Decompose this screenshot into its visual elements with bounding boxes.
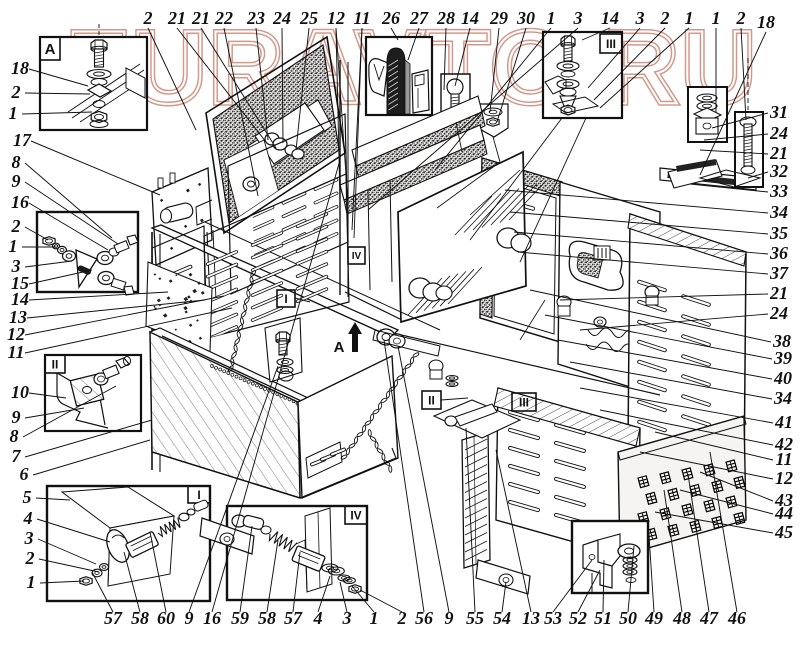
- svg-text:4: 4: [23, 508, 33, 528]
- svg-text:31: 31: [769, 102, 788, 122]
- svg-text:I: I: [284, 292, 287, 306]
- svg-text:3: 3: [635, 8, 645, 28]
- svg-text:2: 2: [11, 82, 21, 102]
- svg-text:33: 33: [769, 181, 788, 201]
- svg-text:2: 2: [11, 216, 21, 236]
- svg-text:21: 21: [167, 8, 186, 28]
- svg-text:IV: IV: [352, 251, 362, 262]
- svg-text:36: 36: [769, 243, 788, 263]
- svg-text:2: 2: [397, 608, 407, 628]
- svg-text:16: 16: [11, 192, 29, 212]
- svg-text:1: 1: [27, 572, 36, 592]
- svg-text:3: 3: [24, 528, 34, 548]
- svg-text:57: 57: [104, 608, 123, 628]
- svg-text:8: 8: [12, 152, 21, 172]
- svg-text:4: 4: [313, 608, 323, 628]
- svg-text:III: III: [519, 395, 529, 409]
- svg-text:12: 12: [327, 8, 345, 28]
- svg-text:1: 1: [685, 8, 694, 28]
- svg-text:1: 1: [712, 8, 721, 28]
- svg-text:34: 34: [769, 202, 788, 222]
- svg-text:2: 2: [143, 8, 153, 28]
- svg-text:9: 9: [12, 407, 21, 427]
- svg-text:6: 6: [20, 464, 29, 484]
- svg-text:30: 30: [516, 8, 535, 28]
- svg-text:27: 27: [409, 8, 429, 28]
- svg-text:A: A: [334, 339, 345, 356]
- svg-text:17: 17: [13, 130, 32, 150]
- svg-text:23: 23: [246, 8, 265, 28]
- svg-text:18: 18: [11, 58, 29, 78]
- svg-text:21: 21: [769, 283, 788, 303]
- svg-text:I: I: [197, 488, 200, 502]
- svg-text:10: 10: [11, 382, 29, 402]
- svg-text:45: 45: [774, 522, 793, 542]
- svg-text:1: 1: [370, 608, 379, 628]
- svg-text:3: 3: [573, 8, 583, 28]
- svg-text:III: III: [606, 37, 616, 51]
- svg-text:8: 8: [10, 426, 19, 446]
- svg-text:1: 1: [9, 236, 18, 256]
- svg-text:1: 1: [547, 8, 556, 28]
- svg-text:25: 25: [299, 8, 318, 28]
- svg-text:12: 12: [7, 324, 25, 344]
- svg-text:37: 37: [769, 263, 789, 283]
- svg-text:2: 2: [736, 8, 746, 28]
- svg-text:11: 11: [775, 449, 792, 469]
- svg-text:41: 41: [774, 412, 793, 432]
- svg-text:24: 24: [272, 8, 291, 28]
- svg-text:2: 2: [660, 8, 670, 28]
- svg-text:12: 12: [775, 468, 793, 488]
- svg-text:44: 44: [774, 503, 793, 523]
- svg-text:32: 32: [769, 161, 788, 181]
- svg-text:II: II: [52, 357, 59, 371]
- svg-text:14: 14: [11, 289, 29, 309]
- svg-text:2: 2: [25, 548, 35, 568]
- svg-text:29: 29: [489, 8, 508, 28]
- svg-text:24: 24: [769, 303, 788, 323]
- svg-text:39: 39: [773, 348, 792, 368]
- svg-text:40: 40: [773, 368, 792, 388]
- svg-text:21: 21: [769, 143, 788, 163]
- svg-text:7: 7: [12, 446, 22, 466]
- svg-text:11: 11: [353, 8, 370, 28]
- svg-text:II: II: [428, 393, 435, 407]
- svg-text:1: 1: [9, 103, 18, 123]
- svg-text:18: 18: [757, 12, 775, 32]
- svg-text:A: A: [45, 41, 56, 58]
- svg-text:53: 53: [544, 608, 562, 628]
- svg-text:21: 21: [191, 8, 210, 28]
- svg-text:26: 26: [381, 8, 400, 28]
- svg-text:35: 35: [769, 223, 788, 243]
- svg-text:14: 14: [461, 8, 479, 28]
- svg-text:IV: IV: [350, 508, 361, 522]
- svg-text:14: 14: [601, 8, 619, 28]
- svg-text:24: 24: [769, 123, 788, 143]
- svg-text:28: 28: [436, 8, 455, 28]
- svg-text:5: 5: [23, 487, 32, 507]
- svg-text:11: 11: [7, 342, 24, 362]
- svg-text:22: 22: [214, 8, 233, 28]
- svg-text:34: 34: [773, 388, 792, 408]
- svg-text:9: 9: [12, 171, 21, 191]
